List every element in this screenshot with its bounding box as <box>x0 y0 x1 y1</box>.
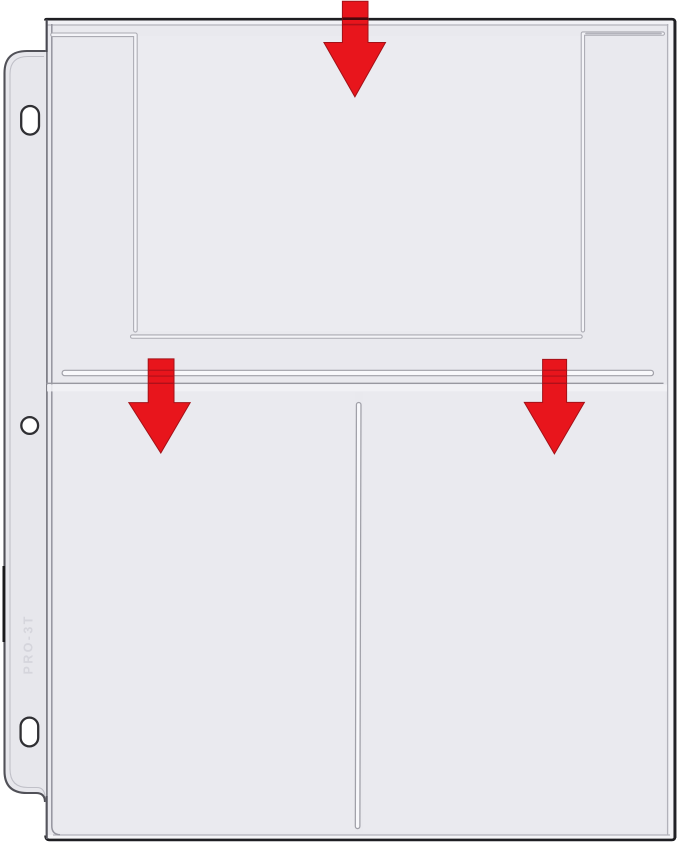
svg-text:PRO-3T: PRO-3T <box>22 614 36 674</box>
